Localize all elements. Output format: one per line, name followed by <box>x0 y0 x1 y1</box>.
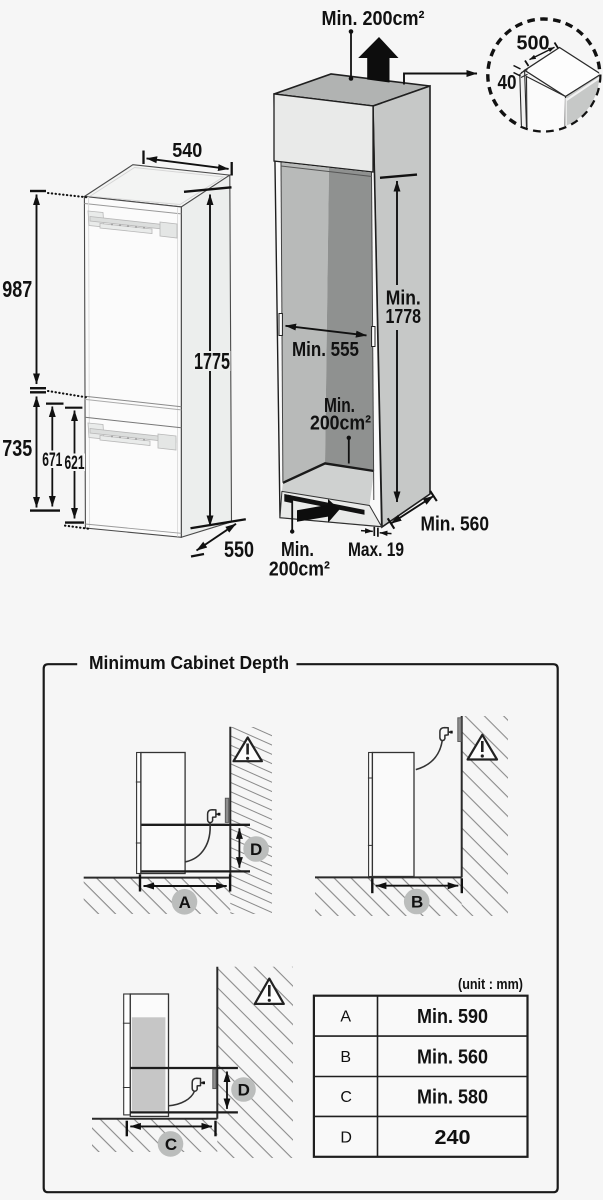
svg-text:(unit : mm): (unit : mm) <box>458 977 523 993</box>
svg-text:Min. 560: Min. 560 <box>417 1047 488 1069</box>
svg-text:Min. 560: Min. 560 <box>421 513 490 535</box>
svg-text:240: 240 <box>435 1127 471 1149</box>
svg-text:Minimum Cabinet Depth: Minimum Cabinet Depth <box>89 653 289 673</box>
svg-text:987: 987 <box>2 276 32 302</box>
svg-text:D: D <box>340 1129 352 1146</box>
svg-text:671: 671 <box>42 450 62 471</box>
svg-text:Max. 19: Max. 19 <box>348 540 404 561</box>
svg-text:B: B <box>411 893 423 912</box>
svg-text:B: B <box>340 1049 351 1066</box>
svg-text:A: A <box>179 893 191 912</box>
svg-text:D: D <box>238 1081 250 1100</box>
svg-text:A: A <box>340 1009 351 1026</box>
svg-text:500: 500 <box>517 33 550 55</box>
svg-text:C: C <box>165 1135 177 1154</box>
svg-text:Min. 580: Min. 580 <box>417 1087 488 1109</box>
svg-text:621: 621 <box>65 453 85 474</box>
svg-text:1778: 1778 <box>386 306 422 328</box>
svg-text:1775: 1775 <box>194 348 230 374</box>
svg-text:Min. 200cm²: Min. 200cm² <box>322 8 425 30</box>
svg-text:200cm²: 200cm² <box>310 412 371 434</box>
svg-text:735: 735 <box>2 435 32 461</box>
svg-text:200cm²: 200cm² <box>269 558 330 580</box>
svg-text:540: 540 <box>172 140 202 162</box>
svg-text:D: D <box>250 840 262 859</box>
svg-text:Min. 555: Min. 555 <box>292 339 359 361</box>
svg-text:550: 550 <box>224 537 254 562</box>
svg-text:40: 40 <box>498 72 517 94</box>
svg-text:C: C <box>340 1089 352 1106</box>
svg-text:Min. 590: Min. 590 <box>417 1006 488 1028</box>
